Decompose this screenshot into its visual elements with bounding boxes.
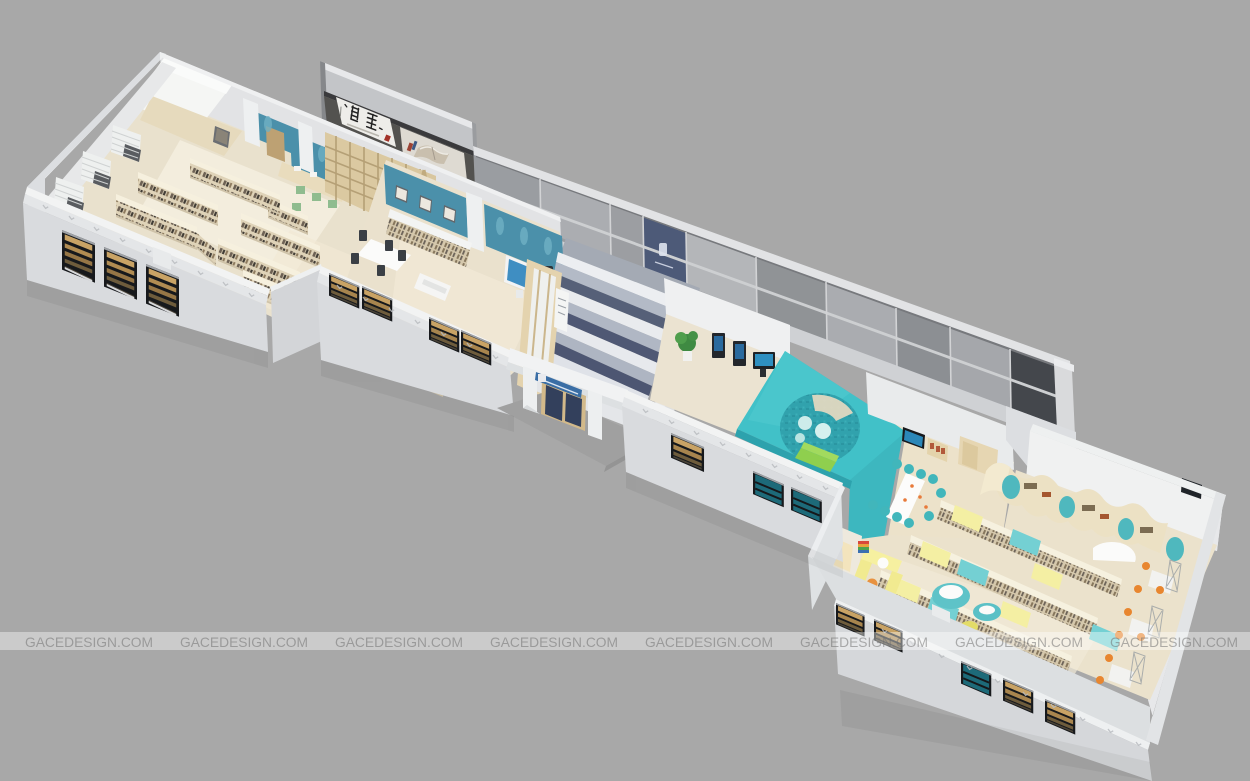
svg-text:GACEDESIGN.COM: GACEDESIGN.COM: [335, 635, 463, 650]
svg-text:GACEDESIGN.COM: GACEDESIGN.COM: [25, 635, 153, 650]
svg-text:GACEDESIGN.COM: GACEDESIGN.COM: [645, 635, 773, 650]
svg-text:GACEDESIGN.COM: GACEDESIGN.COM: [800, 635, 928, 650]
svg-text:GACEDESIGN.COM: GACEDESIGN.COM: [490, 635, 618, 650]
svg-text:GACEDESIGN.COM: GACEDESIGN.COM: [955, 635, 1083, 650]
svg-text:GACEDESIGN.COM: GACEDESIGN.COM: [180, 635, 308, 650]
svg-text:GACEDESIGN.COM: GACEDESIGN.COM: [1110, 635, 1238, 650]
